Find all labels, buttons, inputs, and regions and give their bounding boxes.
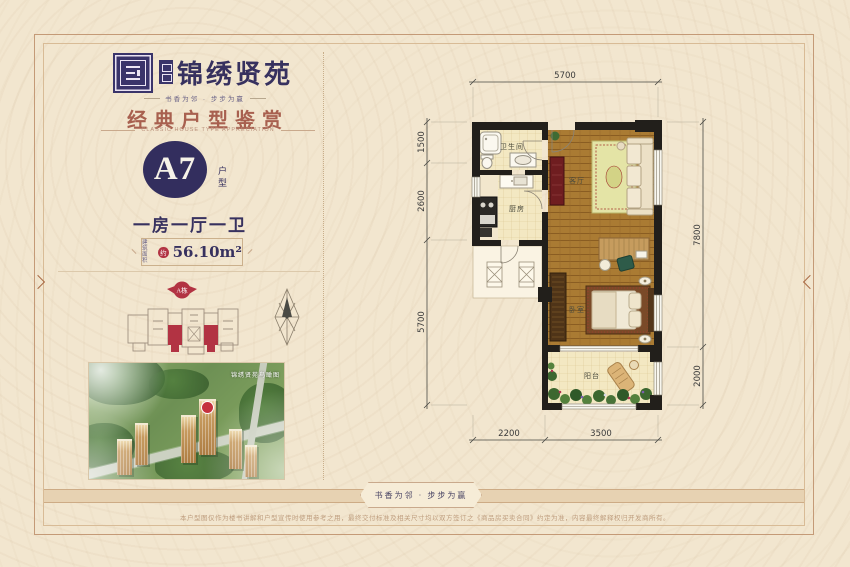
unit-layout: 一房一厅一卫	[105, 211, 275, 236]
washbasin	[510, 153, 536, 167]
brand-seal-icon	[113, 53, 153, 93]
subtitle-line	[281, 130, 315, 131]
approx-badge: 约	[158, 247, 168, 258]
svg-text:2600: 2600	[417, 190, 427, 212]
tagline-text: 书香为邻 · 步步为赢	[165, 93, 245, 103]
area-box: 建筑 面积 约 56.10m²	[141, 238, 243, 266]
svg-text:5700: 5700	[417, 311, 427, 333]
room-label-living: 客厅	[569, 176, 585, 185]
area-value: 56.10m²	[173, 243, 242, 261]
brand-tagline: 书香为邻 · 步步为赢	[110, 93, 300, 103]
brand-submark-icon	[159, 60, 173, 84]
footer-slogan: 书香为邻 · 步步为赢	[375, 490, 468, 501]
aerial-caption: 锦绣贤苑鸟瞰图	[231, 370, 280, 379]
area-label-line1: 建筑	[142, 240, 154, 252]
tagline-dash	[250, 98, 266, 99]
room-label-bedroom: 卧室	[569, 305, 585, 314]
subtitle-line	[101, 130, 135, 131]
building-a-marker	[201, 401, 214, 414]
tagline-dash	[144, 98, 160, 99]
balcony-table	[630, 361, 639, 370]
area-label-line2: 面积	[142, 252, 154, 264]
section-subtitle: CLASSIC HOUSE TYPE APPRECIATION	[70, 127, 346, 133]
kitchen-sink-counter	[500, 175, 533, 188]
highlighted-units	[168, 325, 218, 352]
unit-code: A7	[154, 151, 196, 188]
room-label-kitchen: 厨房	[509, 204, 525, 213]
svg-text:A栋: A栋	[176, 286, 188, 295]
unit-code-suffix: 户型	[216, 166, 229, 190]
building-badge: A栋	[167, 282, 197, 299]
room-label-bathroom: 卫生间	[500, 142, 524, 151]
svg-text:3500: 3500	[590, 429, 612, 439]
svg-text:1500: 1500	[417, 131, 427, 153]
aerial-view-image: 锦绣贤苑鸟瞰图	[88, 362, 285, 480]
compass-icon	[275, 289, 299, 345]
footer-slogan-banner: 书香为邻 · 步步为赢	[360, 482, 482, 508]
unit-code-badge: A7	[143, 141, 207, 198]
subtitle-text: CLASSIC HOUSE TYPE APPRECIATION	[141, 127, 274, 133]
wardrobe	[550, 273, 566, 341]
svg-text:2000: 2000	[693, 365, 703, 387]
left-panel-divider	[58, 271, 320, 272]
area-label: 建筑 面积	[142, 240, 154, 264]
brand-name: 锦绣贤苑	[177, 54, 293, 91]
disclaimer-text: 本户型图仅作为楼书讲解和户型宣传时使用参考之用，最终交付标准及相关尺寸均以双方签…	[60, 512, 790, 522]
svg-text:7800: 7800	[693, 224, 703, 246]
building-footprint	[128, 309, 238, 354]
room-label-balcony: 阳台	[584, 371, 600, 380]
bed	[586, 286, 654, 334]
site-key-plan: A栋	[95, 277, 310, 365]
cloud-haze	[89, 363, 284, 479]
tv-cabinet	[550, 157, 564, 205]
toilet	[481, 155, 493, 169]
brochure-page: 锦绣贤苑 书香为邻 · 步步为赢 经典户型鉴赏 CLASSIC HOUSE TY…	[0, 0, 850, 567]
bathtub	[480, 132, 501, 154]
svg-text:2200: 2200	[498, 429, 520, 439]
floor-plan: 5700 1500 2600 5700 7800 2000 2200 3500 …	[415, 45, 735, 465]
svg-text:5700: 5700	[554, 71, 576, 81]
